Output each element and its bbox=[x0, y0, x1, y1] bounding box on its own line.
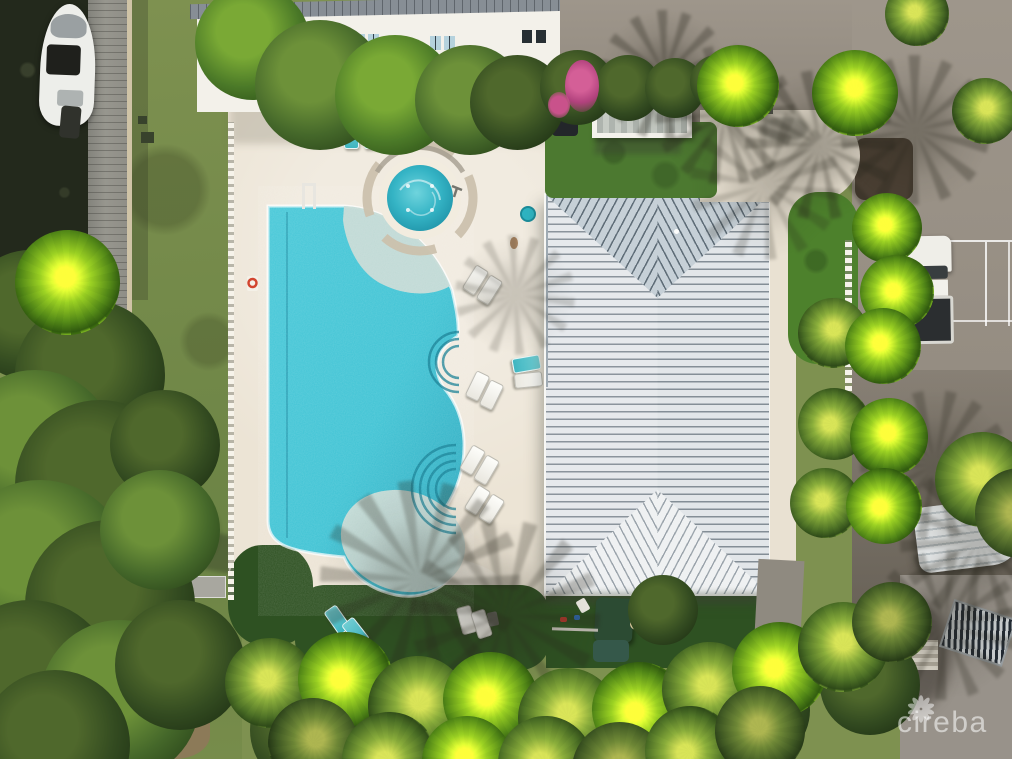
aerial-photo-scene: cireba bbox=[0, 0, 1012, 759]
watermark-text: cireba bbox=[897, 706, 988, 740]
palm-shadow bbox=[690, 110, 840, 260]
tree-canopy bbox=[115, 600, 245, 730]
parking-line bbox=[985, 242, 987, 326]
condo-window bbox=[522, 30, 532, 43]
roof-vent bbox=[674, 229, 679, 234]
bougainvillea bbox=[548, 92, 570, 118]
tree-canopy bbox=[100, 470, 220, 590]
palm-shadow bbox=[455, 235, 575, 355]
white-chaise bbox=[514, 371, 543, 389]
parking-line bbox=[948, 320, 1012, 322]
teal-trash-bin bbox=[521, 207, 535, 221]
clubhouse-roof bbox=[546, 195, 769, 594]
life-ring-station bbox=[247, 276, 258, 291]
palm-tree bbox=[845, 308, 921, 384]
condo-window bbox=[536, 30, 546, 43]
palm-tree bbox=[852, 582, 932, 662]
palm-tree bbox=[697, 45, 779, 127]
playground-canopy bbox=[593, 640, 629, 662]
bougainvillea bbox=[565, 60, 599, 112]
hedge bbox=[628, 575, 698, 645]
parking-line bbox=[1008, 242, 1010, 326]
